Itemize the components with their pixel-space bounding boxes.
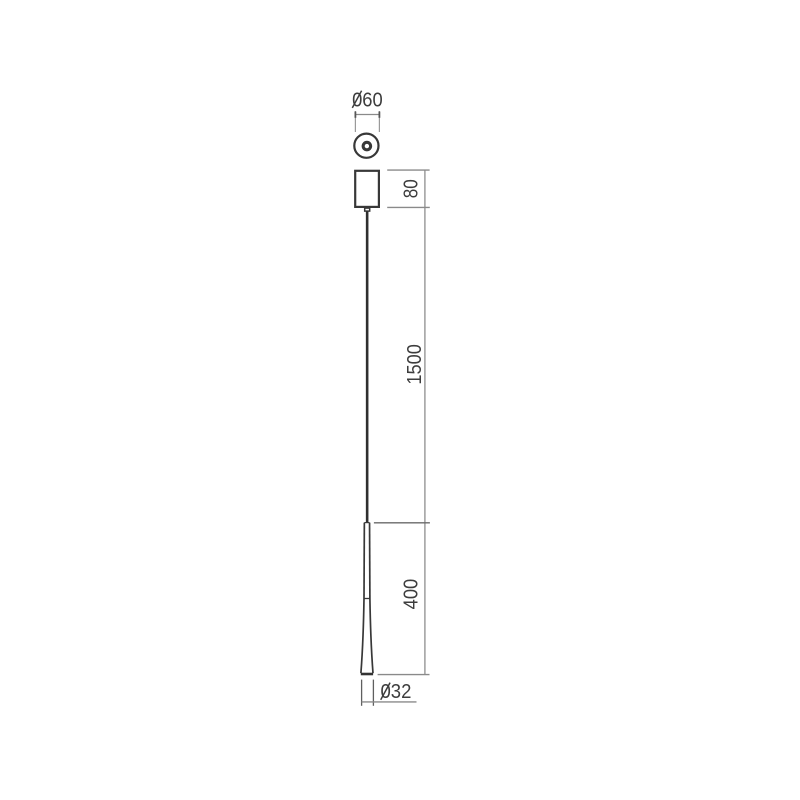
svg-text:1500: 1500 [404, 344, 426, 385]
svg-text:400: 400 [400, 579, 422, 610]
svg-text:80: 80 [400, 179, 422, 198]
